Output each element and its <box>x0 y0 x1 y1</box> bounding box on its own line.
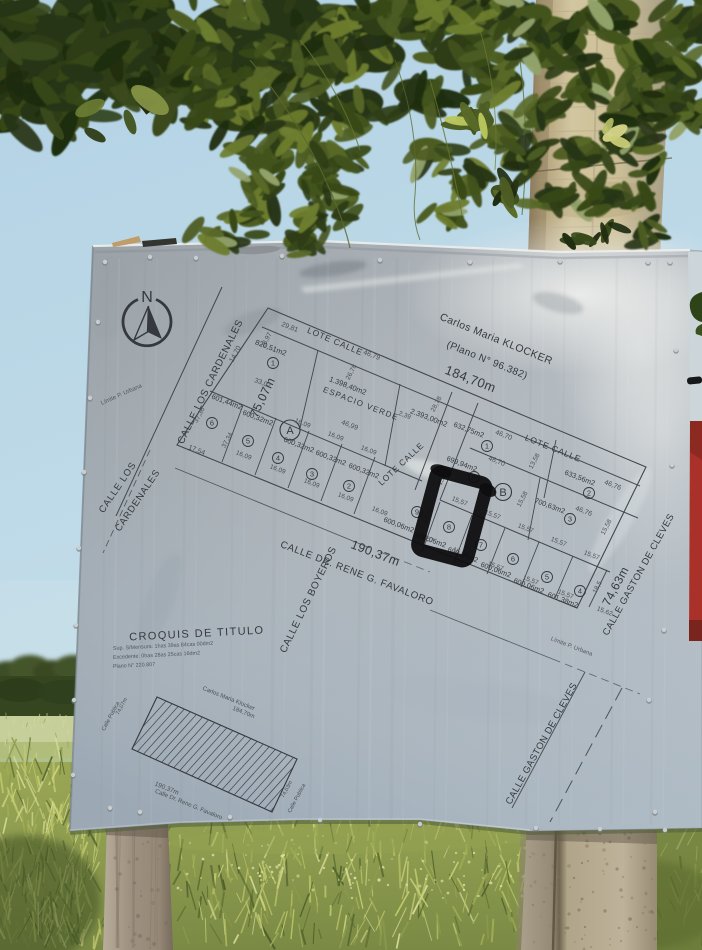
svg-text:5: 5 <box>246 437 250 446</box>
svg-text:8: 8 <box>447 523 451 532</box>
svg-text:3: 3 <box>310 470 314 479</box>
svg-text:5: 5 <box>545 573 549 582</box>
svg-text:6: 6 <box>511 555 515 564</box>
svg-text:4: 4 <box>276 454 280 463</box>
svg-text:4: 4 <box>578 587 582 596</box>
svg-text:1: 1 <box>271 359 275 368</box>
svg-text:2: 2 <box>347 482 351 491</box>
svg-text:N: N <box>141 289 153 306</box>
svg-text:3: 3 <box>568 515 572 524</box>
svg-text:9: 9 <box>415 508 419 517</box>
svg-text:7: 7 <box>479 541 483 550</box>
svg-text:6: 6 <box>210 419 214 428</box>
svg-text:B: B <box>499 487 506 499</box>
svg-text:1: 1 <box>485 442 489 451</box>
svg-text:2: 2 <box>587 489 591 498</box>
